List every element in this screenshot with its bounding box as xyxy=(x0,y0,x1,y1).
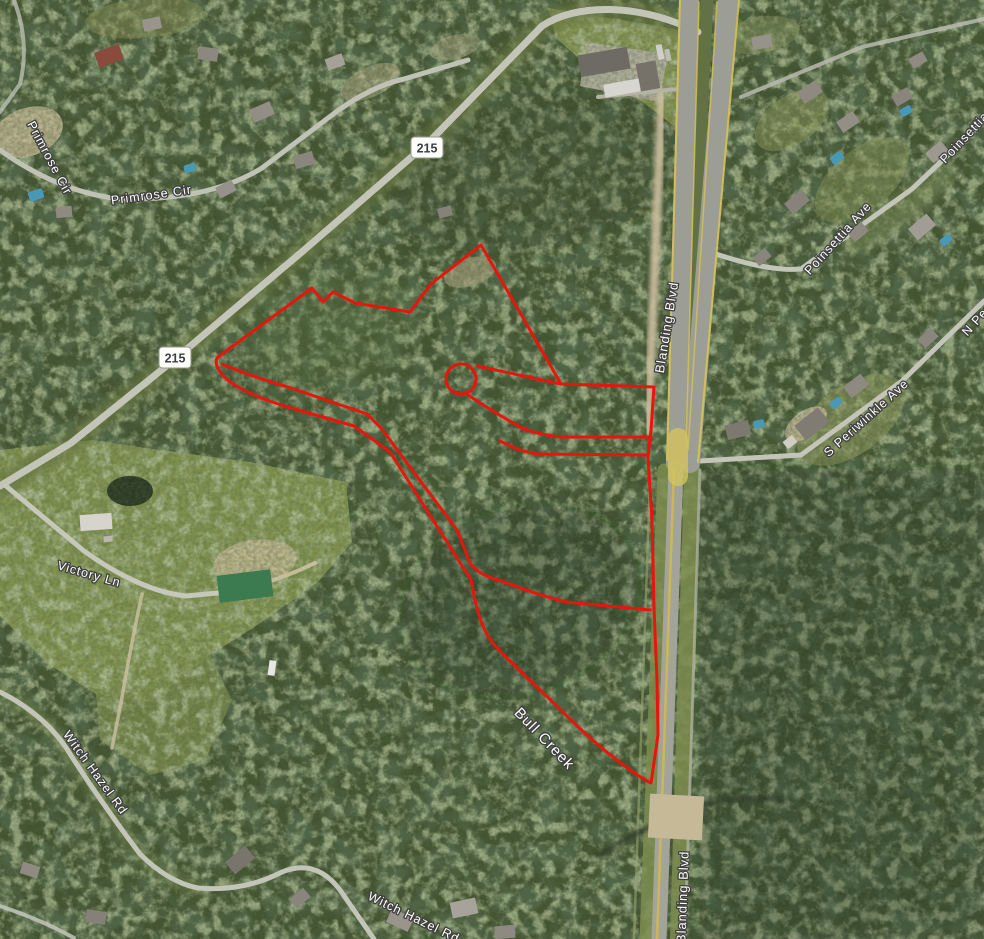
house xyxy=(56,206,73,218)
house xyxy=(85,909,107,925)
satellite-map[interactable]: Primrose CirPrimrose CirBlanding BlvdBla… xyxy=(0,0,984,939)
road-label: Blanding Blvd xyxy=(673,850,691,939)
route-shield-number: 215 xyxy=(165,352,186,366)
satellite-map-viewport[interactable]: Primrose CirPrimrose CirBlanding BlvdBla… xyxy=(0,0,984,939)
farm-building xyxy=(79,513,112,531)
bridge xyxy=(648,794,704,841)
house xyxy=(197,46,219,62)
house xyxy=(494,925,515,939)
route-shield-number: 215 xyxy=(417,142,438,156)
route-shield: 215 xyxy=(159,347,191,368)
forest-texture-speckle xyxy=(0,0,984,939)
route-shield: 215 xyxy=(411,137,443,158)
shed xyxy=(103,536,112,543)
